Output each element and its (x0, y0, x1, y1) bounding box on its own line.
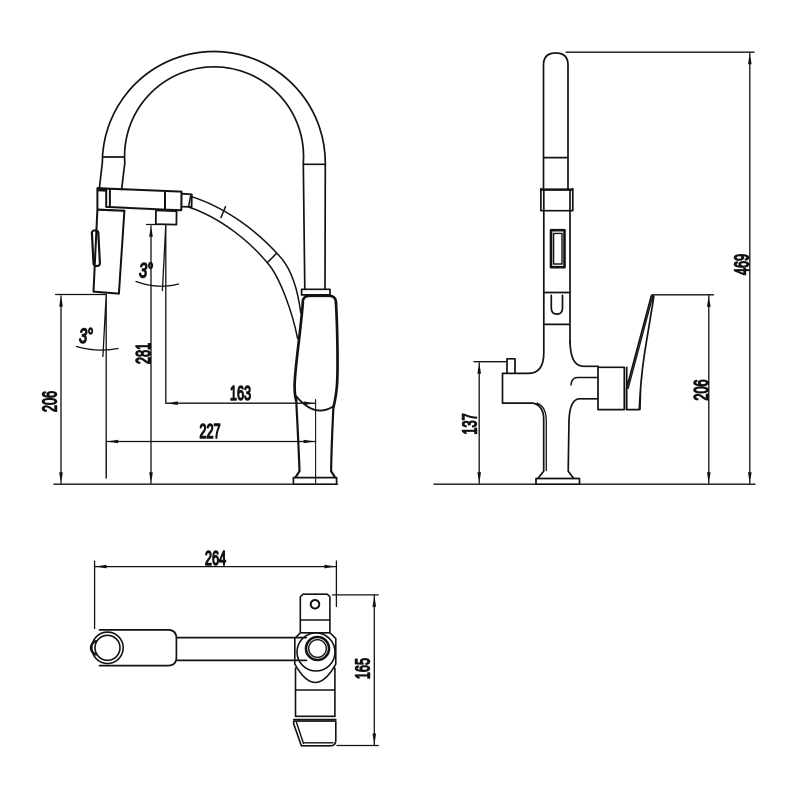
svg-text:469: 469 (730, 254, 753, 275)
svg-text:163: 163 (230, 382, 251, 405)
svg-text:137: 137 (459, 413, 482, 434)
svg-text:206: 206 (39, 391, 62, 412)
svg-text:165: 165 (351, 658, 374, 679)
svg-text:227: 227 (199, 420, 220, 443)
svg-text:281: 281 (132, 343, 155, 364)
svg-text:3°: 3° (139, 259, 153, 282)
svg-text:206: 206 (690, 379, 713, 400)
svg-text:3°: 3° (79, 324, 93, 347)
svg-text:264: 264 (205, 547, 226, 570)
